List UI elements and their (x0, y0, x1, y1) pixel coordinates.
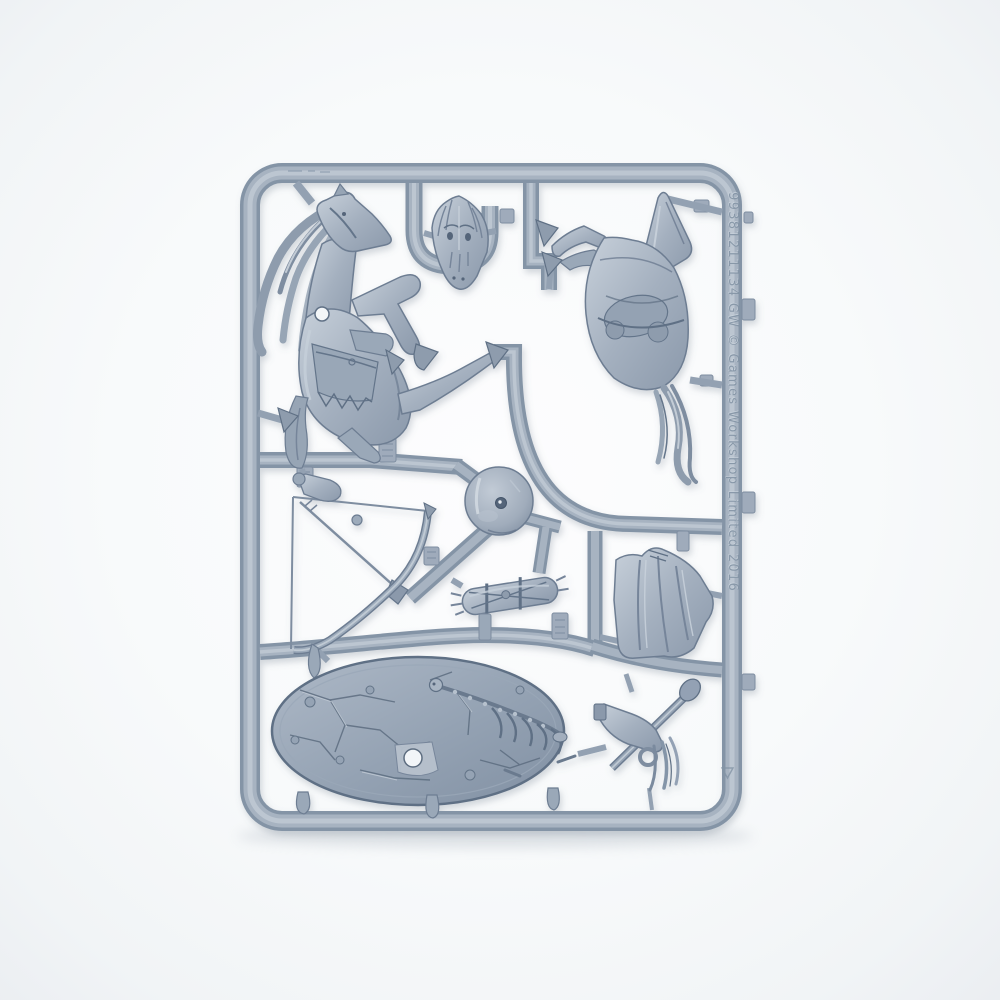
sprue-gate (547, 788, 559, 810)
sprue-tab (744, 212, 753, 223)
sprue-lug (479, 614, 491, 640)
skeleton-skull (430, 679, 443, 692)
base-center-hole (404, 749, 422, 767)
sprue-lug (677, 531, 689, 551)
assembly-hole (315, 307, 329, 321)
sprue-lug (500, 209, 514, 223)
sprue-gate (690, 380, 722, 385)
sprue-tab (742, 492, 755, 513)
sprue-gate (426, 795, 439, 818)
sprue-tab (742, 674, 755, 690)
embossed-copyright: 99381211134 GW © Games Workshop Limited … (724, 191, 740, 592)
product-photo: 99381211134 GW © Games Workshop Limited … (0, 0, 1000, 1000)
sprue-lug (424, 547, 439, 565)
sprue-gate (296, 792, 309, 814)
bow-bead (352, 515, 362, 525)
horse-eye (342, 212, 346, 216)
face-eye (447, 232, 453, 240)
sprue-tab (742, 299, 755, 320)
sprue-gate (600, 637, 618, 641)
sprue-lug (552, 613, 568, 639)
face-eye (465, 233, 471, 241)
photo-canvas: 99381211134 GW © Games Workshop Limited … (0, 0, 1000, 1000)
sprue-gate (308, 644, 320, 678)
embossed-copyright-text: 99381211134 GW © Games Workshop Limited … (725, 192, 740, 592)
part-round-disc (465, 467, 533, 535)
